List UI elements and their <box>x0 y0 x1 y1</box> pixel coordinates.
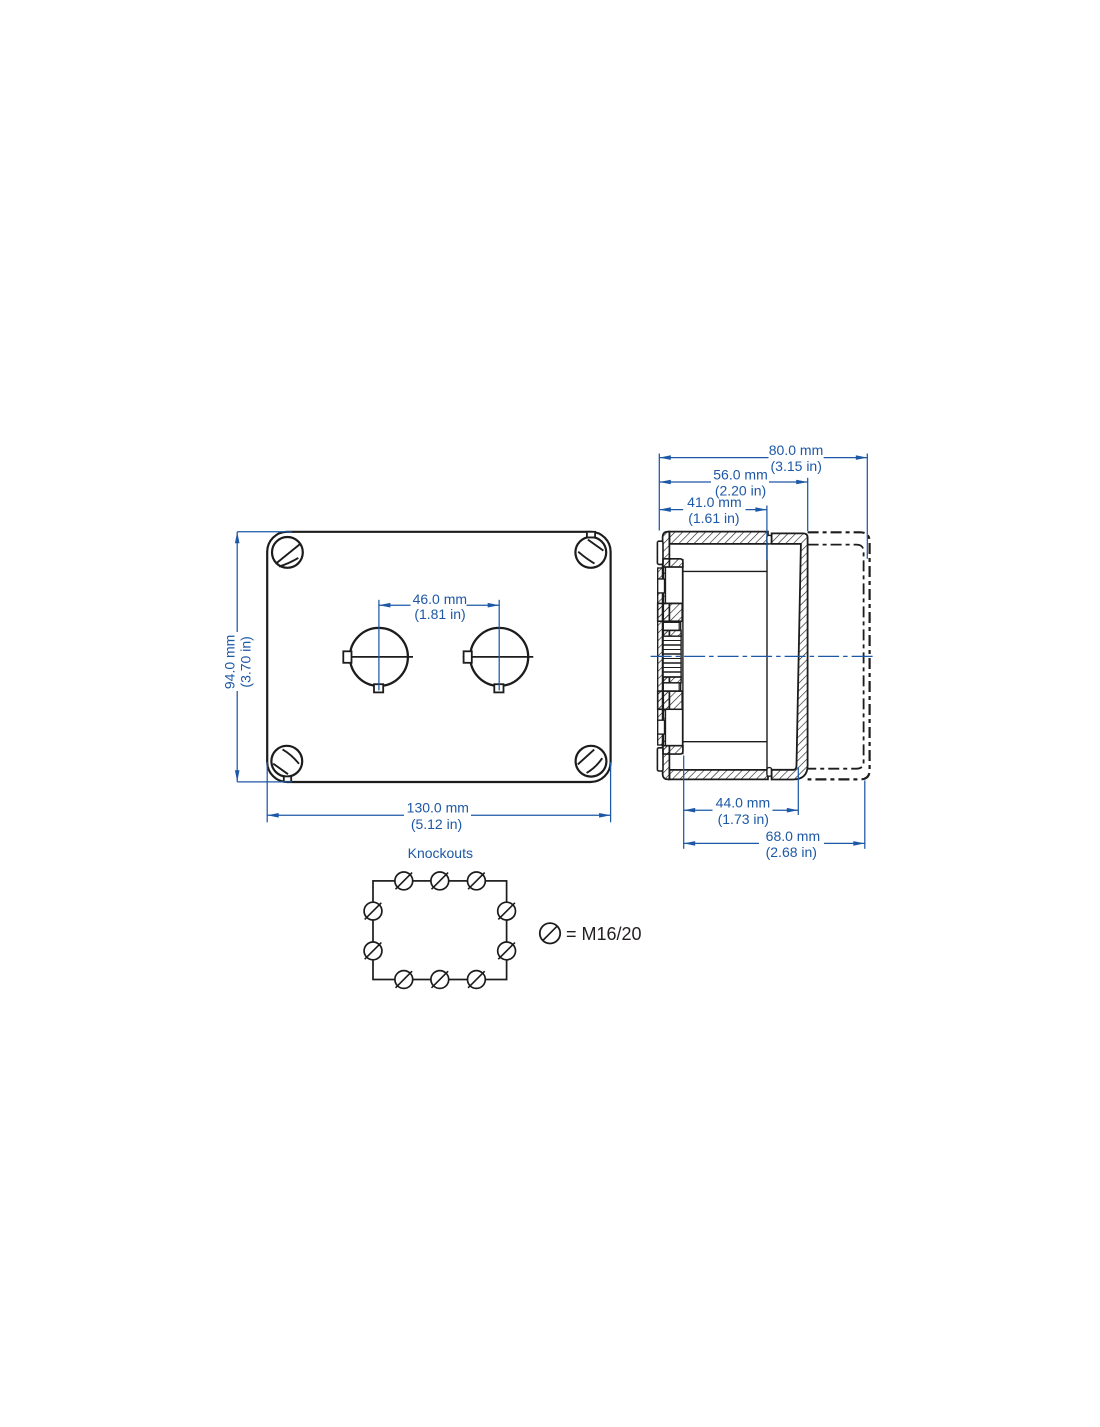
svg-text:(5.12 in): (5.12 in) <box>411 816 462 832</box>
svg-text:46.0 mm: 46.0 mm <box>413 591 467 607</box>
svg-text:(1.73 in): (1.73 in) <box>718 811 769 827</box>
svg-text:Knockouts: Knockouts <box>408 845 473 861</box>
svg-text:= M16/20: = M16/20 <box>566 924 642 944</box>
svg-text:130.0 mm: 130.0 mm <box>407 800 469 816</box>
svg-text:(1.81 in): (1.81 in) <box>414 606 465 622</box>
svg-text:44.0 mm: 44.0 mm <box>716 795 770 811</box>
svg-text:68.0 mm: 68.0 mm <box>766 828 820 844</box>
svg-text:56.0 mm: 56.0 mm <box>713 466 767 482</box>
svg-text:(3.70 in): (3.70 in) <box>237 636 253 687</box>
svg-text:(2.68 in): (2.68 in) <box>766 844 817 860</box>
svg-text:94.0 mm: 94.0 mm <box>222 635 238 689</box>
svg-text:(1.61 in): (1.61 in) <box>688 510 739 526</box>
svg-text:(3.15 in): (3.15 in) <box>771 458 822 474</box>
svg-text:80.0 mm: 80.0 mm <box>769 442 823 458</box>
svg-text:41.0 mm: 41.0 mm <box>687 494 741 510</box>
